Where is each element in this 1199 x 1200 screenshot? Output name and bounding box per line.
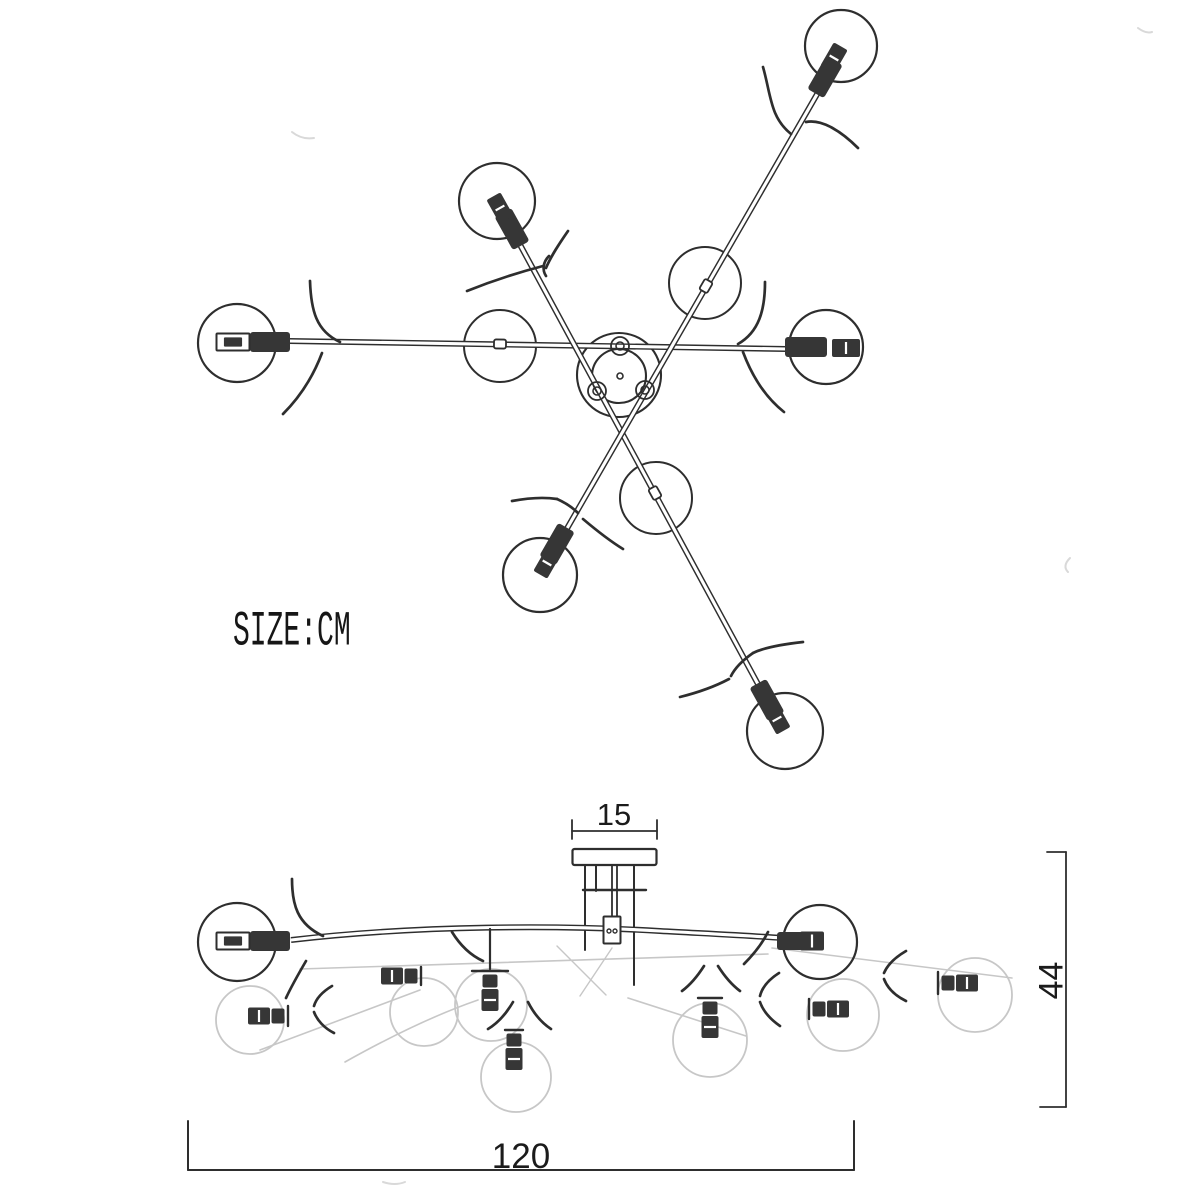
globe-socket [785, 337, 860, 357]
arm-hook [528, 1002, 551, 1029]
lamp-bulb [809, 999, 849, 1019]
lamp-bulb [505, 1030, 523, 1070]
arm-hook [314, 1012, 334, 1033]
ghost-arm-line [557, 946, 606, 995]
arm-hook [314, 986, 332, 1006]
ceiling-canopy [573, 849, 657, 865]
arm-hook [743, 352, 784, 412]
scan-noise [1065, 558, 1070, 572]
main-arm-bar [291, 927, 781, 940]
arm-hook [292, 879, 323, 936]
scan-noise [292, 28, 1152, 1184]
lamp-bulb [472, 971, 508, 1011]
scan-noise [292, 132, 314, 138]
arm-hook [467, 266, 543, 291]
arm-hook [512, 498, 557, 501]
arm-hook [310, 281, 340, 342]
globe-bottom-left [503, 538, 577, 612]
arm-hook [753, 642, 803, 653]
dim-total-width-label: 120 [471, 1137, 571, 1177]
arm-hook [452, 932, 483, 961]
arm-hook [682, 966, 704, 991]
arm-hook [680, 679, 729, 697]
globe-socket [217, 931, 291, 951]
arm-hook [806, 122, 858, 148]
scan-noise [1138, 28, 1152, 33]
ghost-arm-line [628, 998, 746, 1036]
scan-noise [383, 1182, 405, 1184]
dim-canopy-width-label: 15 [583, 797, 645, 833]
lamp-bulb [381, 967, 421, 985]
arm-hook [884, 979, 906, 1001]
center-socket [604, 917, 621, 944]
arm-rod-horizontal [289, 341, 787, 349]
globe-socket [486, 192, 529, 250]
chandelier-technical-drawing [0, 0, 1199, 1200]
arm-hook [283, 353, 322, 414]
dim-height-label: 44 [1033, 955, 1072, 1007]
ghost-arm-line [300, 954, 768, 969]
arm-hook [738, 282, 765, 344]
arm-hook [583, 519, 623, 549]
arm-hook [718, 966, 740, 991]
ghost-arm-line [580, 948, 612, 996]
size-units-label: SIZE:CM [233, 606, 351, 660]
canopy-center-hole [617, 373, 623, 379]
arm-hook [760, 1002, 780, 1026]
mid-globe-connector [648, 486, 662, 501]
mid-globe-connector [494, 339, 506, 348]
globe-top-right [805, 10, 877, 82]
arm-hook [760, 973, 779, 996]
side-view-ghosts [216, 946, 1012, 1112]
globe-socket [217, 332, 291, 352]
globe-bottom-right [747, 693, 823, 769]
ghost-globe [938, 958, 1012, 1032]
globe-socket [777, 932, 824, 951]
arm-hook [286, 961, 306, 998]
arm-hook [546, 231, 568, 268]
lamp-bulb [248, 1006, 288, 1026]
arm-hook [763, 67, 791, 134]
arm-hook [557, 499, 578, 513]
arm-rod-nw-se [505, 217, 772, 710]
drawing-canvas: SIZE:CM 15 44 120 [0, 0, 1199, 1200]
